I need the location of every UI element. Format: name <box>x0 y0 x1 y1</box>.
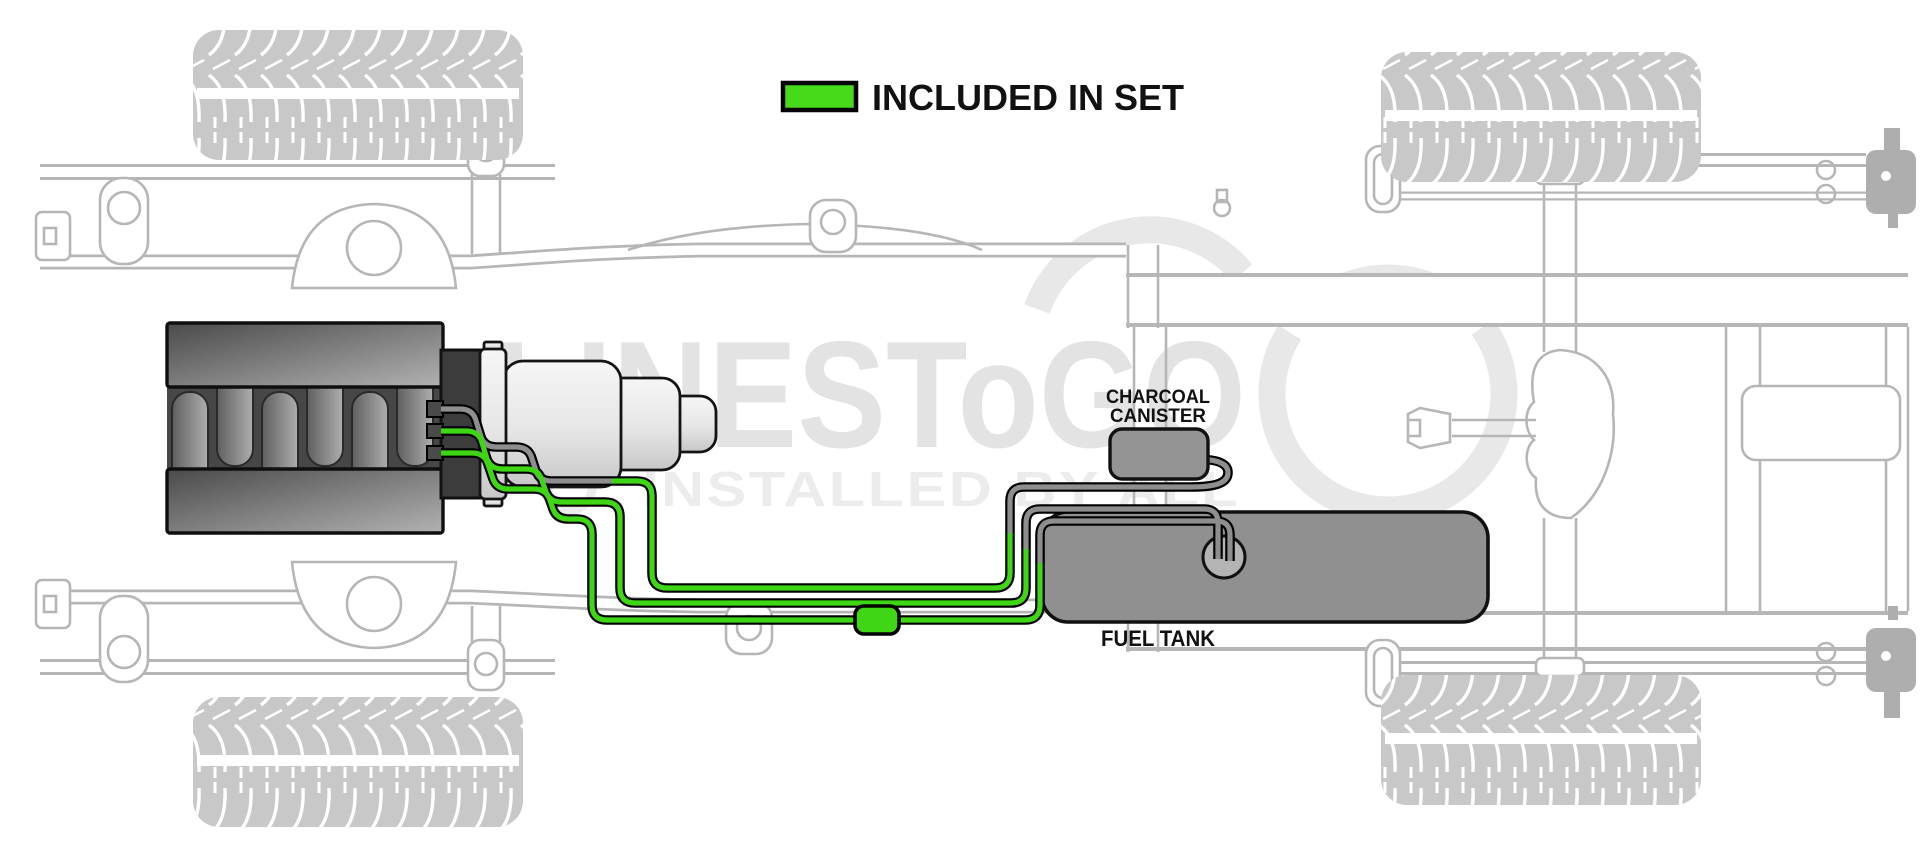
yoke <box>1408 408 1450 448</box>
frame-end-bracket-bottom <box>36 580 70 628</box>
valve-cover-bottom <box>167 469 443 533</box>
body-mount-bottom-mid <box>468 640 504 690</box>
tire-bottom-right <box>1381 675 1701 805</box>
inline-connector <box>855 606 899 634</box>
transfer-case-skid-plate <box>1742 386 1900 460</box>
fuel-line-diagram: LINESToGO INSTALLED BY ALL <box>0 0 1930 841</box>
fuel-pump-module <box>1203 536 1245 578</box>
body-mount-bottom <box>726 602 772 654</box>
fuel-port-1 <box>427 401 443 417</box>
diagram-canvas: LINESToGO INSTALLED BY ALL <box>0 0 1930 841</box>
fuel-port-2 <box>427 424 443 438</box>
crossmembers-right <box>1726 327 1908 611</box>
fuel-tank <box>1042 512 1488 622</box>
charcoal-canister <box>1110 429 1208 479</box>
legend-swatch <box>783 83 856 110</box>
tire-top-right <box>1381 52 1701 204</box>
frame-end-bracket-top <box>36 212 70 260</box>
charcoal-canister-label-line1: CHARCOAL <box>1106 387 1210 408</box>
tire-bottom-left <box>193 697 523 827</box>
body-mount-top <box>810 200 856 252</box>
fuel-tank-label: FUEL TANK <box>1101 626 1216 651</box>
legend-label: INCLUDED IN SET <box>872 77 1184 118</box>
charcoal-canister-label-line2: CANISTER <box>1110 406 1206 427</box>
tire-top-left <box>193 30 523 160</box>
steering-knuckle-top <box>1866 128 1916 228</box>
crossmember-hump-bottom <box>292 562 456 648</box>
legend: INCLUDED IN SET <box>783 77 1184 118</box>
fuel-port-3 <box>427 446 443 460</box>
differential <box>1527 350 1614 518</box>
valve-cover-top <box>167 323 443 387</box>
engine <box>167 323 485 533</box>
